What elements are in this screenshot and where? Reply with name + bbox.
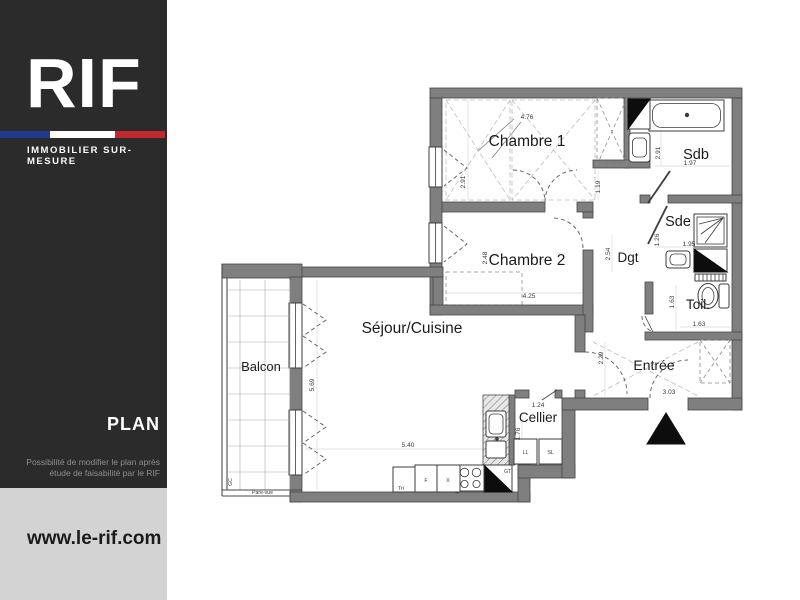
dim-entree-height: 2.29: [598, 351, 605, 364]
room-label-dgt: Dgt: [617, 250, 638, 265]
towel-radiator-icon: [695, 274, 726, 281]
dim-sde-width: 1.95: [683, 241, 696, 248]
dim-entree-width: 3.03: [663, 389, 676, 396]
label-tri: Tri: [398, 486, 404, 492]
wall-chambre2-bottom: [430, 305, 593, 315]
room-label-entree: Entrée: [633, 357, 674, 373]
dim-sde-height: 1.26: [654, 233, 661, 246]
dim-chambre2-width: 4.25: [523, 293, 536, 300]
flag-blue-segment: [0, 131, 50, 138]
dim-sdb-width: 1.97: [684, 160, 697, 167]
chambre2-door-swing: [553, 218, 583, 248]
sejour-entree-door-swing: [585, 352, 627, 394]
label-garde-corps: GC: [228, 478, 234, 486]
section-title: PLAN: [107, 414, 160, 435]
dim-chambre1-passage: 1.19: [595, 180, 602, 193]
label-gt: GT: [504, 469, 512, 475]
dim-chambre2-height: 2.48: [482, 251, 489, 264]
chambre1-door-swing: [545, 170, 577, 202]
balcony: [222, 264, 302, 496]
wall-chambre-divider: [442, 202, 545, 212]
bathtub-icon: [649, 100, 724, 131]
floor-plan-area: Chambre 1 Sdb Sde Dgt Toil. Chambre 2 Sé…: [167, 0, 800, 600]
room-label-chambre1: Chambre 1: [489, 133, 566, 150]
balcony-decking-grid: [228, 280, 290, 490]
dim-dgt-height: 2.54: [605, 247, 612, 260]
chambre2-window: [429, 223, 467, 263]
dashed-decor: [446, 100, 698, 396]
dim-sejour-height: 5.69: [309, 378, 316, 391]
entrance-arrow-icon: [647, 413, 685, 444]
dim-cellier-width: 1.24: [532, 402, 545, 409]
rif-logo: RIF: [26, 48, 142, 118]
sdb-washbasin-icon: [629, 133, 650, 162]
fixtures: [628, 99, 729, 309]
wall-balcony-top: [222, 264, 302, 278]
sejour-window-2: [289, 410, 326, 475]
room-label-cellier: Cellier: [519, 410, 558, 425]
room-label-sde: Sde: [665, 214, 691, 230]
label-pare-vue: Pare-vue: [252, 490, 273, 496]
sdb-technical-shaft: [628, 99, 650, 129]
sde-technical-shaft: [694, 249, 727, 272]
room-label-balcon: Balcon: [241, 359, 281, 374]
plan-disclaimer: Possibilité de modifier le plan après ét…: [10, 457, 160, 480]
label-dryer: SL: [547, 450, 553, 456]
room-label-chambre2: Chambre 2: [489, 252, 566, 269]
label-fridge: F: [424, 478, 427, 484]
flag-white-segment: [50, 131, 115, 138]
entree-closet: [700, 340, 730, 383]
label-oven: X: [446, 478, 450, 484]
dim-toil-width: 1.63: [693, 321, 706, 328]
sejour-window-1: [289, 303, 326, 368]
chambre1-closet: [597, 98, 627, 165]
sidebar: RIF IMMOBILIER SUR-MESURE PLAN Possibili…: [0, 0, 167, 488]
brand-tagline: IMMOBILIER SUR-MESURE: [27, 145, 167, 167]
sdb-door-leaf: [648, 171, 670, 203]
dim-chambre1-width: 4.76: [521, 114, 534, 121]
wall-toil-south: [645, 332, 742, 340]
flag-red-segment: [115, 131, 165, 138]
chambre2-dashed-zone: [446, 272, 522, 305]
wall-kitchen-bottom: [290, 492, 530, 502]
wall-sde-top: [668, 195, 742, 203]
cellier-appliances: [514, 439, 562, 464]
dim-sdb-height: 2.91: [655, 146, 662, 159]
room-label-sejour: Séjour/Cuisine: [362, 320, 463, 337]
waste-sorting-unit: [393, 467, 415, 492]
wall-entree-bottom-left: [562, 398, 648, 410]
dim-toil-height: 1.63: [669, 295, 676, 308]
disclaimer-line-2: étude de faisabilité par le RIF: [49, 468, 160, 478]
room-label-toil: Toil.: [686, 297, 710, 312]
wall-sejour-entree: [575, 315, 585, 352]
shower-icon: [694, 214, 727, 247]
disclaimer-line-1: Possibilité de modifier le plan après: [26, 457, 160, 467]
wall-entree-bottom-right: [688, 398, 742, 410]
wall-right: [732, 98, 742, 410]
wall-sejour-top: [290, 267, 443, 277]
dim-sejour-width: 5.40: [402, 442, 415, 449]
page: RIF IMMOBILIER SUR-MESURE PLAN Possibili…: [0, 0, 800, 600]
wall-top: [430, 88, 742, 98]
floor-plan-drawing: Chambre 1 Sdb Sde Dgt Toil. Chambre 2 Sé…: [167, 0, 800, 600]
kitchen-counter-sink: [483, 395, 509, 465]
wall-toil-west: [645, 282, 653, 314]
label-washing-machine: LL: [523, 450, 529, 456]
dim-cellier-height: 1.76: [515, 427, 522, 440]
sde-washbasin-icon: [666, 251, 690, 268]
website-url: www.le-rif.com: [27, 528, 161, 550]
tricolor-flag-bar: [0, 131, 165, 138]
dim-chambre1-height: 2.91: [460, 175, 467, 188]
